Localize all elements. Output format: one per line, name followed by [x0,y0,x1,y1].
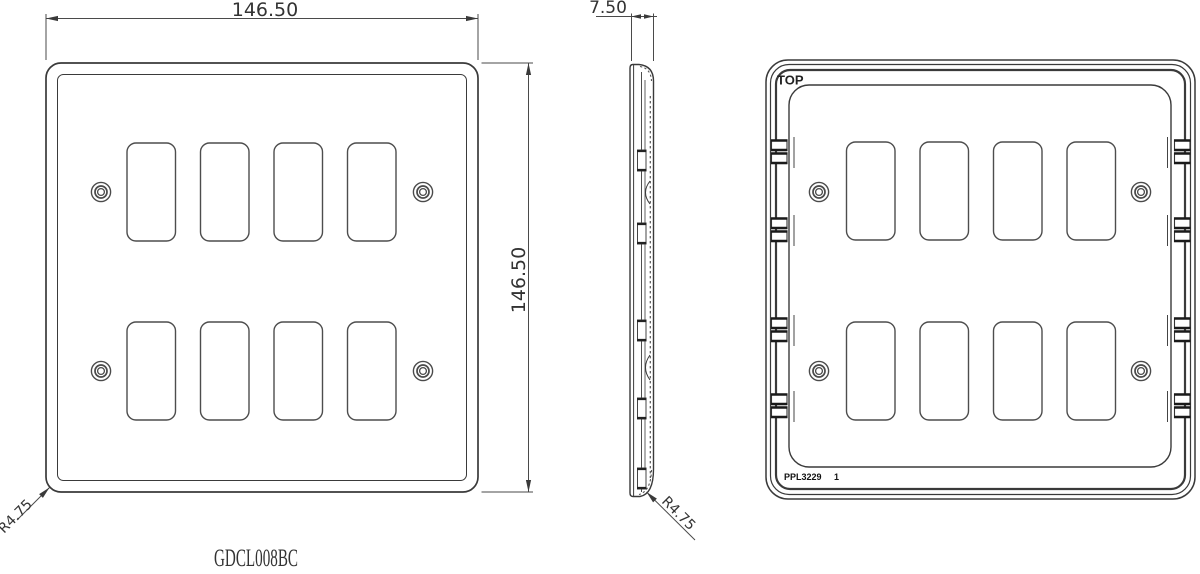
rocker-aperture [201,322,250,420]
width-dimension-label: 146.50 [232,0,298,21]
side-corner-radius-label: R4.75 [658,494,698,534]
front-view: 146.50 146.50 R4.75 [0,0,533,537]
rocker-aperture [1067,142,1116,240]
rocker-aperture [847,322,896,420]
screw-hole [809,361,828,380]
height-dimension-label: 146.50 [508,247,530,313]
rocker-aperture [348,143,397,241]
rocker-aperture [994,322,1043,420]
rocker-aperture [127,322,176,420]
side-clip [637,398,647,419]
rocker-aperture [127,143,176,241]
mould-sheet-label: 1 [834,472,839,482]
side-view: 7.50 R4.75 [589,0,698,540]
screw-hole [91,182,110,201]
height-dimension: 146.50 [482,63,534,492]
technical-drawing-canvas: 146.50 146.50 R4.75 [0,0,1200,574]
screw-hole [413,361,432,380]
side-clip [637,223,647,244]
top-orientation-label: TOP [777,73,804,88]
part-code-label: GDCL008BC [214,545,298,572]
rocker-aperture [274,322,323,420]
rocker-aperture [994,142,1043,240]
side-clip [637,320,647,341]
rocker-aperture [1067,322,1116,420]
front-corner-radius-callout: R4.75 [0,488,50,537]
side-clip [637,468,647,489]
side-clip [637,150,647,171]
screw-hole [809,182,828,201]
rocker-aperture [847,142,896,240]
mould-ref-label: PPL3229 [784,472,822,482]
front-corner-radius-label: R4.75 [0,497,36,537]
front-plate-outline [46,63,478,492]
rocker-aperture [920,142,969,240]
screw-hole [1131,361,1150,380]
width-dimension: 146.50 [46,0,478,60]
screw-hole [91,361,110,380]
rocker-aperture [201,143,250,241]
rear-view: TOP PPL3229 [766,60,1195,499]
screw-hole [413,182,432,201]
thickness-dimension: 7.50 [589,0,657,61]
screw-hole [1131,182,1150,201]
rocker-aperture [348,322,397,420]
side-corner-radius-callout: R4.75 [647,492,699,540]
rocker-aperture [274,143,323,241]
rocker-aperture [920,322,969,420]
thickness-dimension-label: 7.50 [589,0,627,18]
drawing-sheet: 146.50 146.50 R4.75 [0,0,1200,574]
